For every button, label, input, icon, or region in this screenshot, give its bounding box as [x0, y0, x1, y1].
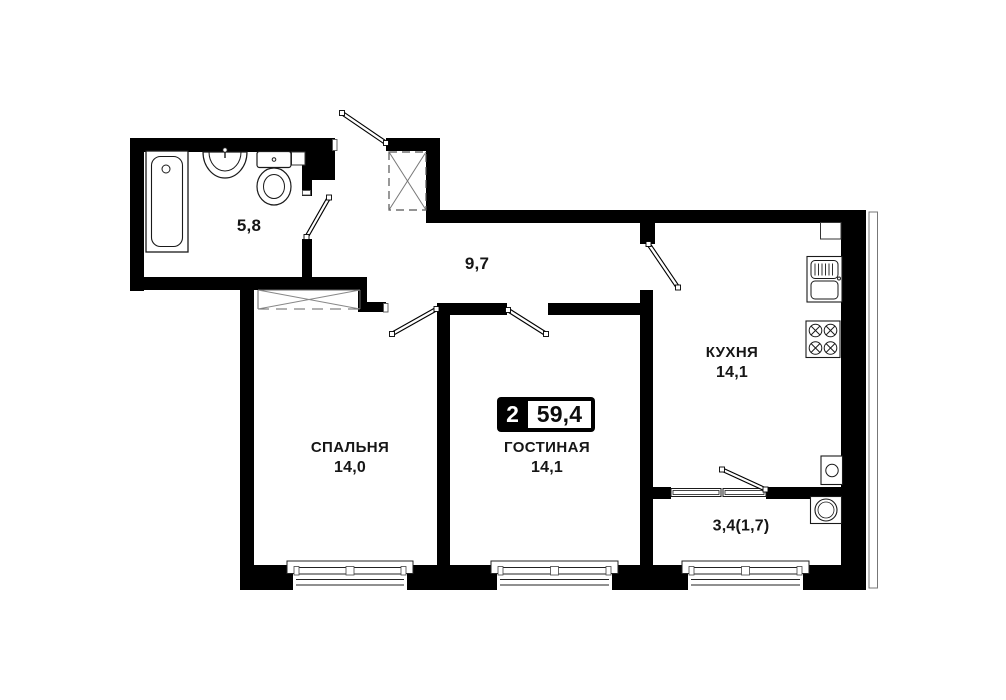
bedroom-area-value: 14,0 [311, 458, 389, 477]
door-bedroom [384, 304, 440, 337]
window-bedroom [287, 561, 413, 590]
window-balcony [682, 561, 809, 590]
bedroom-label: СПАЛЬНЯ 14,0 [311, 439, 389, 477]
bath-sink [203, 148, 247, 178]
door-kitchen [646, 242, 681, 291]
toilet [257, 152, 291, 206]
door-living-room [506, 308, 549, 337]
washing-machine [811, 497, 842, 524]
vent-notch-kitchen [821, 223, 842, 240]
bathroom-area-value: 5,8 [237, 216, 261, 235]
stove [806, 321, 840, 358]
badge-rooms-count: 2 [497, 401, 528, 428]
bathroom-area-label: 5,8 [237, 216, 261, 236]
wardrobe-box [258, 290, 360, 309]
vent-notch-bathroom [292, 152, 306, 165]
balcony-glazing [671, 489, 766, 497]
floor-plan-drawing [0, 0, 1006, 700]
vent-shaft-box [389, 152, 426, 210]
living-room-name: ГОСТИНАЯ [504, 439, 590, 457]
kitchen-area-value: 14,1 [706, 363, 758, 382]
balcony-area-label: 3,4(1,7) [713, 516, 770, 535]
floor-plan: 5,8 9,7 СПАЛЬНЯ 14,0 ГОСТИНАЯ 14,1 КУХНЯ… [0, 0, 1006, 700]
badge-total-area: 59,4 [528, 401, 591, 428]
window-living-room [491, 561, 618, 590]
hallway-area-label: 9,7 [465, 254, 489, 274]
parapet-line [869, 212, 878, 588]
living-room-area-value: 14,1 [504, 458, 590, 477]
bedroom-name: СПАЛЬНЯ [311, 439, 389, 457]
bathtub [146, 151, 188, 252]
door-bathroom [303, 191, 332, 240]
door-entrance [333, 111, 389, 151]
balcony-area-value: 3,4(1,7) [713, 517, 770, 534]
hallway-area-value: 9,7 [465, 254, 489, 273]
living-room-label: ГОСТИНАЯ 14,1 [504, 439, 590, 477]
apartment-badge: 2 59,4 [497, 397, 595, 432]
kitchen-name: КУХНЯ [706, 344, 758, 362]
boiler [821, 456, 843, 485]
kitchen-label: КУХНЯ 14,1 [706, 344, 758, 382]
kitchen-sink [807, 257, 842, 303]
